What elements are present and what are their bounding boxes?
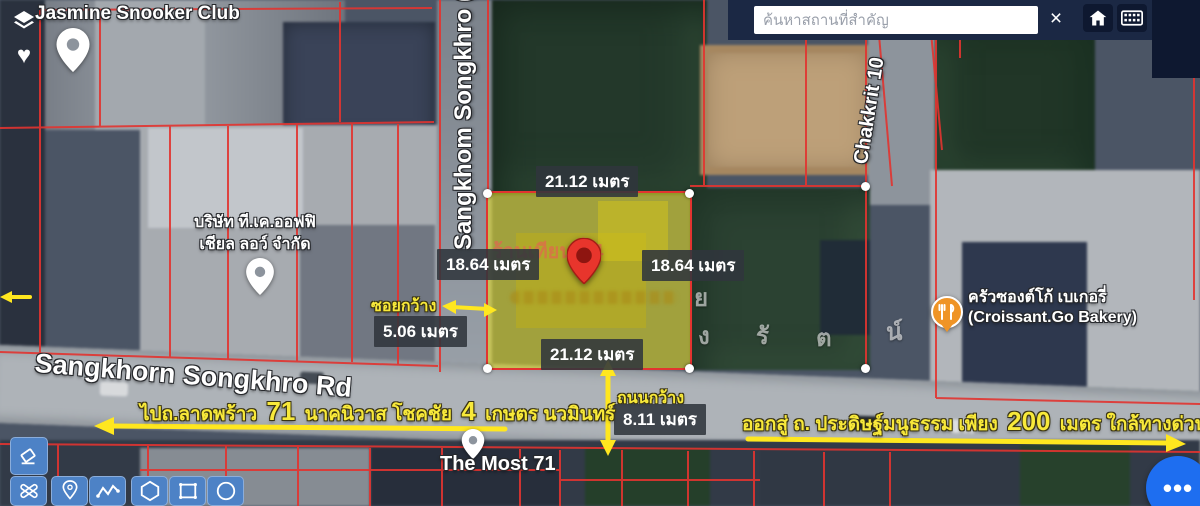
district-letter: รั (756, 316, 769, 355)
crossed-tools-icon (17, 480, 41, 502)
measure-right: 18.64 เมตร (642, 250, 744, 281)
measure-bottom: 21.12 เมตร (541, 339, 643, 370)
layers-button[interactable] (0, 2, 48, 38)
parcel-corner-dot[interactable] (685, 364, 694, 373)
basemap-grid-button[interactable] (1117, 4, 1147, 32)
home-icon (1088, 8, 1108, 28)
eraser-tool-button[interactable] (10, 437, 48, 475)
eraser-icon (18, 445, 40, 467)
district-letter: น์ (886, 312, 902, 351)
route-annotation-right: ออกสู่ ถ. ประดิษฐ์มนูธรรม เพียง 200 เมตร… (742, 406, 1162, 439)
rectangle-icon (177, 481, 199, 501)
draw-rectangle-button[interactable] (169, 476, 206, 506)
draw-point-button[interactable] (51, 476, 88, 506)
measure-top: 21.12 เมตร (536, 166, 638, 197)
draw-circle-button[interactable] (207, 476, 244, 506)
route-left-number: 4 (461, 396, 475, 426)
search-input[interactable] (754, 6, 1038, 34)
route-annotation-left: ไปถ.ลาดพร้าว 71 นาคนิวาส โชคชัย 4 เกษตร … (140, 396, 570, 429)
poi-label-bakery: ครัวซองต์โก้ เบเกอรี่ (Croissant.Go Bake… (968, 288, 1137, 328)
road-width-value: 8.11 เมตร (614, 404, 706, 435)
draw-polygon-button[interactable] (131, 476, 168, 506)
poi-label-company: บริษัท ที.เค.ออฟฟิ เชียล ลอว์ จำกัด (160, 212, 350, 256)
route-right-text: เมตร ใกล้ทางด่วน (1060, 414, 1200, 435)
measure-tools-button[interactable] (10, 476, 47, 506)
circle-icon (215, 480, 237, 502)
company-line1: บริษัท ที.เค.ออฟฟิ (160, 212, 350, 234)
poi-label-jasmine: Jasmine Snooker Club (35, 3, 240, 25)
home-button[interactable] (1083, 4, 1113, 32)
measure-left: 18.64 เมตร (437, 249, 539, 280)
route-right-number: 200 (1007, 406, 1050, 436)
road-label-sangkhom-vertical: Sangkhom Songkhro ( (450, 0, 478, 250)
parcel-corner-dot[interactable] (483, 189, 492, 198)
alley-width-value: 5.06 เมตร (374, 316, 467, 347)
district-letter: ย (694, 278, 708, 317)
polyline-icon (96, 481, 120, 501)
watermark-blur (510, 291, 678, 304)
route-left-number: 71 (266, 396, 295, 426)
parcel-corner-dot[interactable] (861, 182, 870, 191)
poi-pin-jasmine[interactable] (56, 28, 90, 72)
parcel-corner-dot[interactable] (483, 364, 492, 373)
pin-marker-icon (60, 479, 80, 503)
poi-pin-bakery-restaurant-icon[interactable] (930, 296, 964, 334)
grid-icon (1121, 10, 1143, 26)
district-letter: ต (816, 318, 832, 357)
poi-label-the-most: The Most 71 (440, 453, 556, 476)
heart-icon: ♥ (17, 42, 31, 70)
route-right-text: ออกสู่ ถ. ประดิษฐ์มนูธรรม เพียง (742, 414, 998, 435)
search-clear-button[interactable]: × (1042, 6, 1070, 34)
route-left-text: นาคนิวาส โชคชัย (305, 404, 452, 425)
ellipsis-icon: ••• (1163, 473, 1193, 504)
side-button-column (1152, 0, 1200, 78)
layers-icon (12, 8, 36, 32)
bakery-thai-name: ครัวซองต์โก้ เบเกอรี่ (968, 288, 1137, 308)
bakery-english-name: (Croissant.Go Bakery) (968, 308, 1137, 328)
hexagon-icon (139, 480, 161, 502)
parcel-corner-dot[interactable] (685, 189, 694, 198)
red-location-pin[interactable] (567, 238, 601, 284)
draw-polyline-button[interactable] (89, 476, 126, 506)
company-line2: เชียล ลอว์ จำกัด (160, 234, 350, 256)
route-left-text: ไปถ.ลาดพร้าว (140, 404, 257, 425)
route-left-text: เกษตร นวมินทร์ (485, 404, 615, 425)
parcel-corner-dot[interactable] (861, 364, 870, 373)
district-letter: ง (698, 316, 710, 355)
poi-pin-company[interactable] (246, 258, 274, 295)
map-viewer: ร้านเทียนนี่ 4 21.12 เมตร 18.64 เมตร 18. (0, 0, 1200, 506)
favorite-button[interactable]: ♥ (0, 38, 48, 74)
